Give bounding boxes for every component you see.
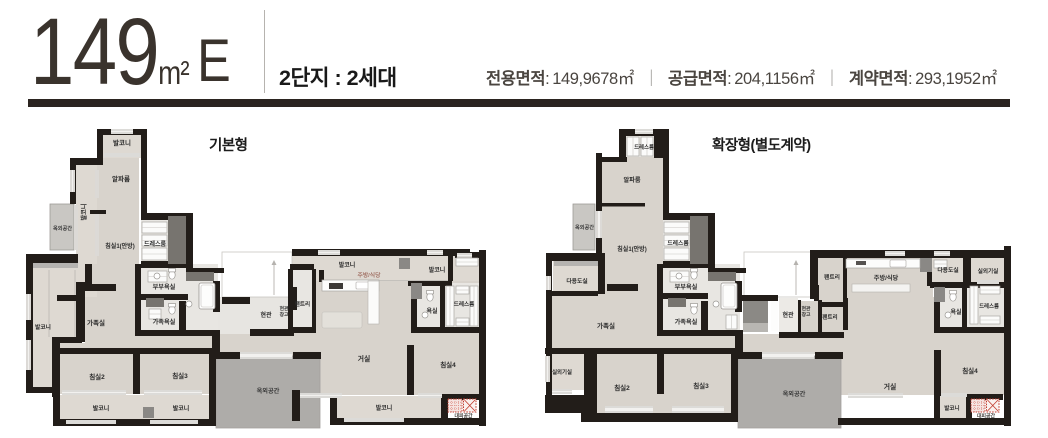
svg-text:발코니: 발코니: [93, 405, 110, 413]
svg-text:팬트리: 팬트리: [824, 273, 840, 281]
svg-text:침실4: 침실4: [962, 366, 978, 375]
svg-text:다용도실: 다용도실: [937, 266, 958, 274]
svg-text:옥외공간: 옥외공간: [257, 387, 280, 395]
svg-text:팬트리: 팬트리: [822, 313, 837, 321]
svg-text:알파룸: 알파룸: [112, 174, 130, 183]
svg-text:옥외공간: 옥외공간: [783, 390, 806, 398]
svg-text:현관: 현관: [782, 311, 794, 319]
svg-text:드레스룸: 드레스룸: [667, 239, 689, 247]
svg-text:대피공간: 대피공간: [455, 413, 473, 420]
svg-text:발코니: 발코니: [35, 323, 51, 331]
svg-text:팬트리: 팬트리: [295, 300, 310, 308]
svg-text:부부욕실: 부부욕실: [153, 283, 176, 291]
svg-text:주방/식당: 주방/식당: [874, 274, 899, 282]
svg-text:침실3: 침실3: [172, 371, 188, 380]
svg-text:실외기실: 실외기실: [978, 267, 999, 275]
svg-text:발코니: 발코니: [80, 203, 88, 220]
svg-text:대피공간: 대피공간: [977, 413, 995, 420]
svg-text:거실: 거실: [358, 354, 371, 363]
svg-text:실외기실: 실외기실: [552, 368, 572, 376]
svg-text:발코니: 발코니: [376, 404, 393, 412]
svg-text:창고: 창고: [280, 311, 289, 318]
svg-text:침실2: 침실2: [89, 372, 105, 381]
svg-text:가족욕실: 가족욕실: [675, 318, 698, 326]
svg-text:욕실: 욕실: [950, 308, 962, 316]
svg-text:발코니: 발코니: [113, 138, 131, 147]
svg-text:창고: 창고: [802, 311, 811, 318]
svg-text:현관: 현관: [280, 305, 289, 312]
svg-text:발코니: 발코니: [173, 405, 190, 413]
svg-text:드레스룸: 드레스룸: [144, 240, 167, 248]
svg-text:드레스룸: 드레스룸: [454, 300, 475, 308]
svg-text:옥외공간: 옥외공간: [53, 224, 72, 232]
svg-text:침실1(안방): 침실1(안방): [617, 245, 646, 253]
svg-text:가족욕실: 가족욕실: [153, 318, 176, 326]
svg-text:드레스룸: 드레스룸: [979, 302, 999, 310]
svg-text:가족실: 가족실: [597, 321, 615, 330]
svg-text:드레스룸: 드레스룸: [634, 143, 654, 151]
svg-text:주방/식당: 주방/식당: [358, 271, 382, 279]
svg-text:침실3: 침실3: [693, 381, 709, 390]
svg-text:다용도실: 다용도실: [566, 277, 587, 285]
svg-text:현관: 현관: [260, 311, 272, 319]
svg-text:침실2: 침실2: [614, 383, 630, 392]
svg-text:침실4: 침실4: [440, 360, 456, 369]
svg-text:옥외공간: 옥외공간: [575, 223, 594, 231]
svg-text:현관: 현관: [802, 305, 811, 312]
svg-text:거실: 거실: [884, 382, 897, 391]
svg-text:가족실: 가족실: [87, 318, 105, 327]
svg-text:알파룸: 알파룸: [623, 176, 640, 184]
svg-text:침실1(안방): 침실1(안방): [105, 242, 134, 250]
svg-text:발코니: 발코니: [944, 404, 959, 412]
svg-text:부부욕실: 부부욕실: [675, 283, 698, 291]
svg-text:발코니: 발코니: [339, 261, 356, 269]
svg-text:욕실: 욕실: [426, 307, 438, 315]
svg-text:발코니: 발코니: [429, 266, 446, 274]
